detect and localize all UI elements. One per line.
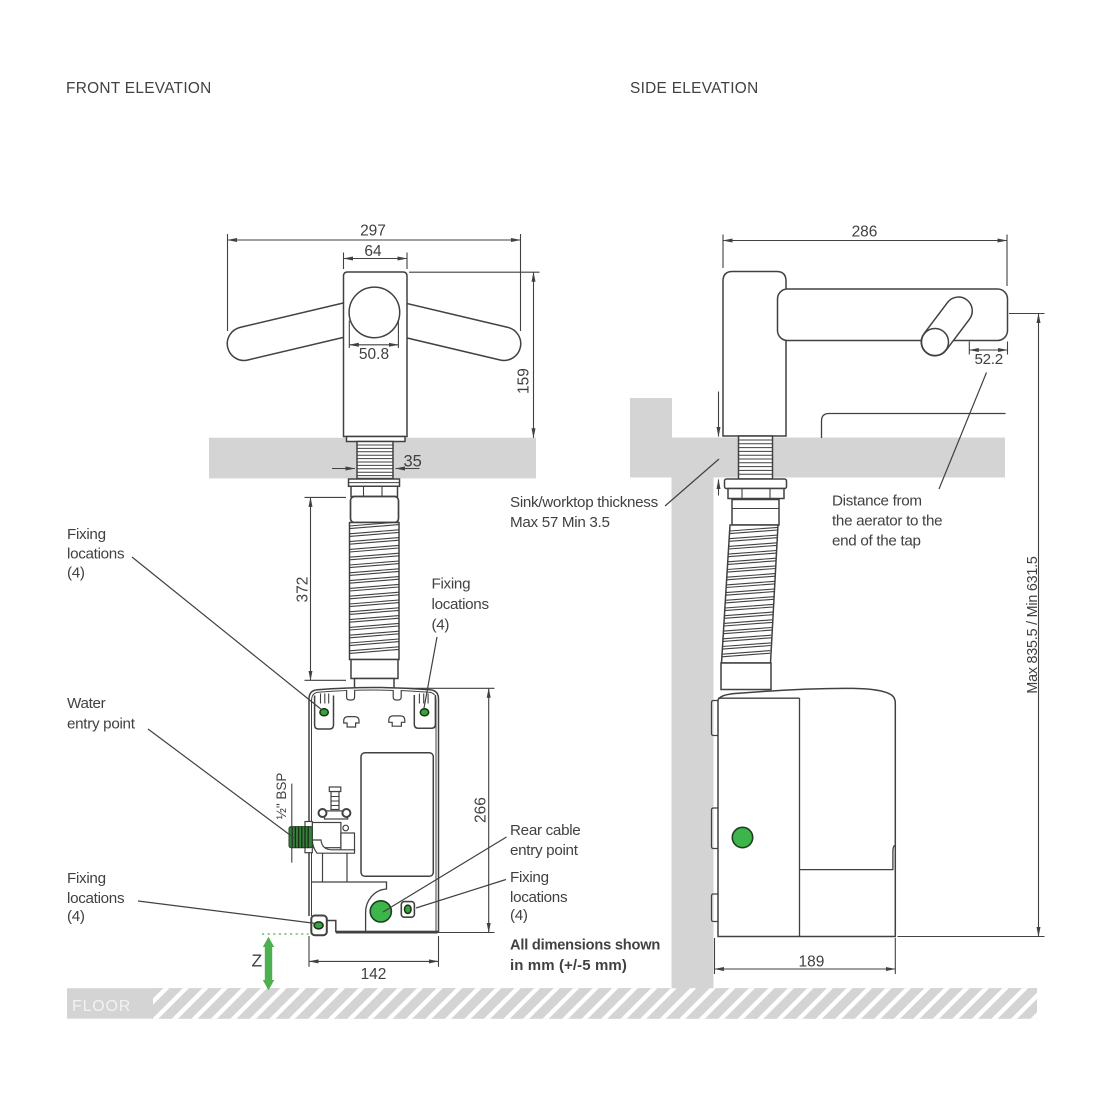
svg-text:Fixing: Fixing xyxy=(67,526,106,543)
svg-text:(4): (4) xyxy=(67,565,85,582)
svg-text:286: 286 xyxy=(852,224,878,241)
svg-text:the aerator to the: the aerator to the xyxy=(832,513,942,530)
svg-text:FLOOR: FLOOR xyxy=(72,998,131,1015)
svg-text:(4): (4) xyxy=(67,908,85,925)
svg-text:Max 835.5 / Min 631.5: Max 835.5 / Min 631.5 xyxy=(1025,556,1041,694)
svg-text:locations: locations xyxy=(510,889,568,906)
svg-text:372: 372 xyxy=(294,577,311,603)
svg-text:FRONT ELEVATION: FRONT ELEVATION xyxy=(66,80,212,97)
svg-text:locations: locations xyxy=(67,546,125,563)
svg-text:Fixing: Fixing xyxy=(432,576,471,593)
svg-text:entry point: entry point xyxy=(67,716,136,733)
svg-text:Z: Z xyxy=(252,951,263,971)
svg-text:(4): (4) xyxy=(432,617,450,634)
svg-text:35: 35 xyxy=(404,453,422,471)
svg-text:Distance from: Distance from xyxy=(832,493,922,510)
svg-text:end of the tap: end of the tap xyxy=(832,533,921,550)
svg-text:Water: Water xyxy=(67,695,106,712)
svg-text:64: 64 xyxy=(364,243,382,260)
svg-text:189: 189 xyxy=(798,954,824,971)
svg-text:in mm (+/-5 mm): in mm (+/-5 mm) xyxy=(510,957,627,974)
svg-text:(4): (4) xyxy=(510,907,528,924)
svg-text:142: 142 xyxy=(361,966,387,983)
svg-text:SIDE ELEVATION: SIDE ELEVATION xyxy=(630,80,759,97)
svg-text:Max 57 Min 3.5: Max 57 Min 3.5 xyxy=(510,514,610,531)
svg-text:entry point: entry point xyxy=(510,842,579,859)
svg-text:locations: locations xyxy=(67,890,125,907)
svg-text:266: 266 xyxy=(472,797,489,823)
svg-text:½" BSP: ½" BSP xyxy=(274,773,289,820)
svg-text:locations: locations xyxy=(432,596,490,613)
svg-text:Fixing: Fixing xyxy=(510,869,549,886)
svg-text:297: 297 xyxy=(360,223,386,240)
svg-text:50.8: 50.8 xyxy=(359,346,389,363)
svg-text:52.2: 52.2 xyxy=(975,351,1003,368)
svg-text:Fixing: Fixing xyxy=(67,870,106,887)
svg-text:All dimensions shown: All dimensions shown xyxy=(510,938,660,954)
svg-text:159: 159 xyxy=(515,368,532,394)
svg-text:Sink/worktop thickness: Sink/worktop thickness xyxy=(510,494,659,511)
svg-text:Rear cable: Rear cable xyxy=(510,822,580,839)
